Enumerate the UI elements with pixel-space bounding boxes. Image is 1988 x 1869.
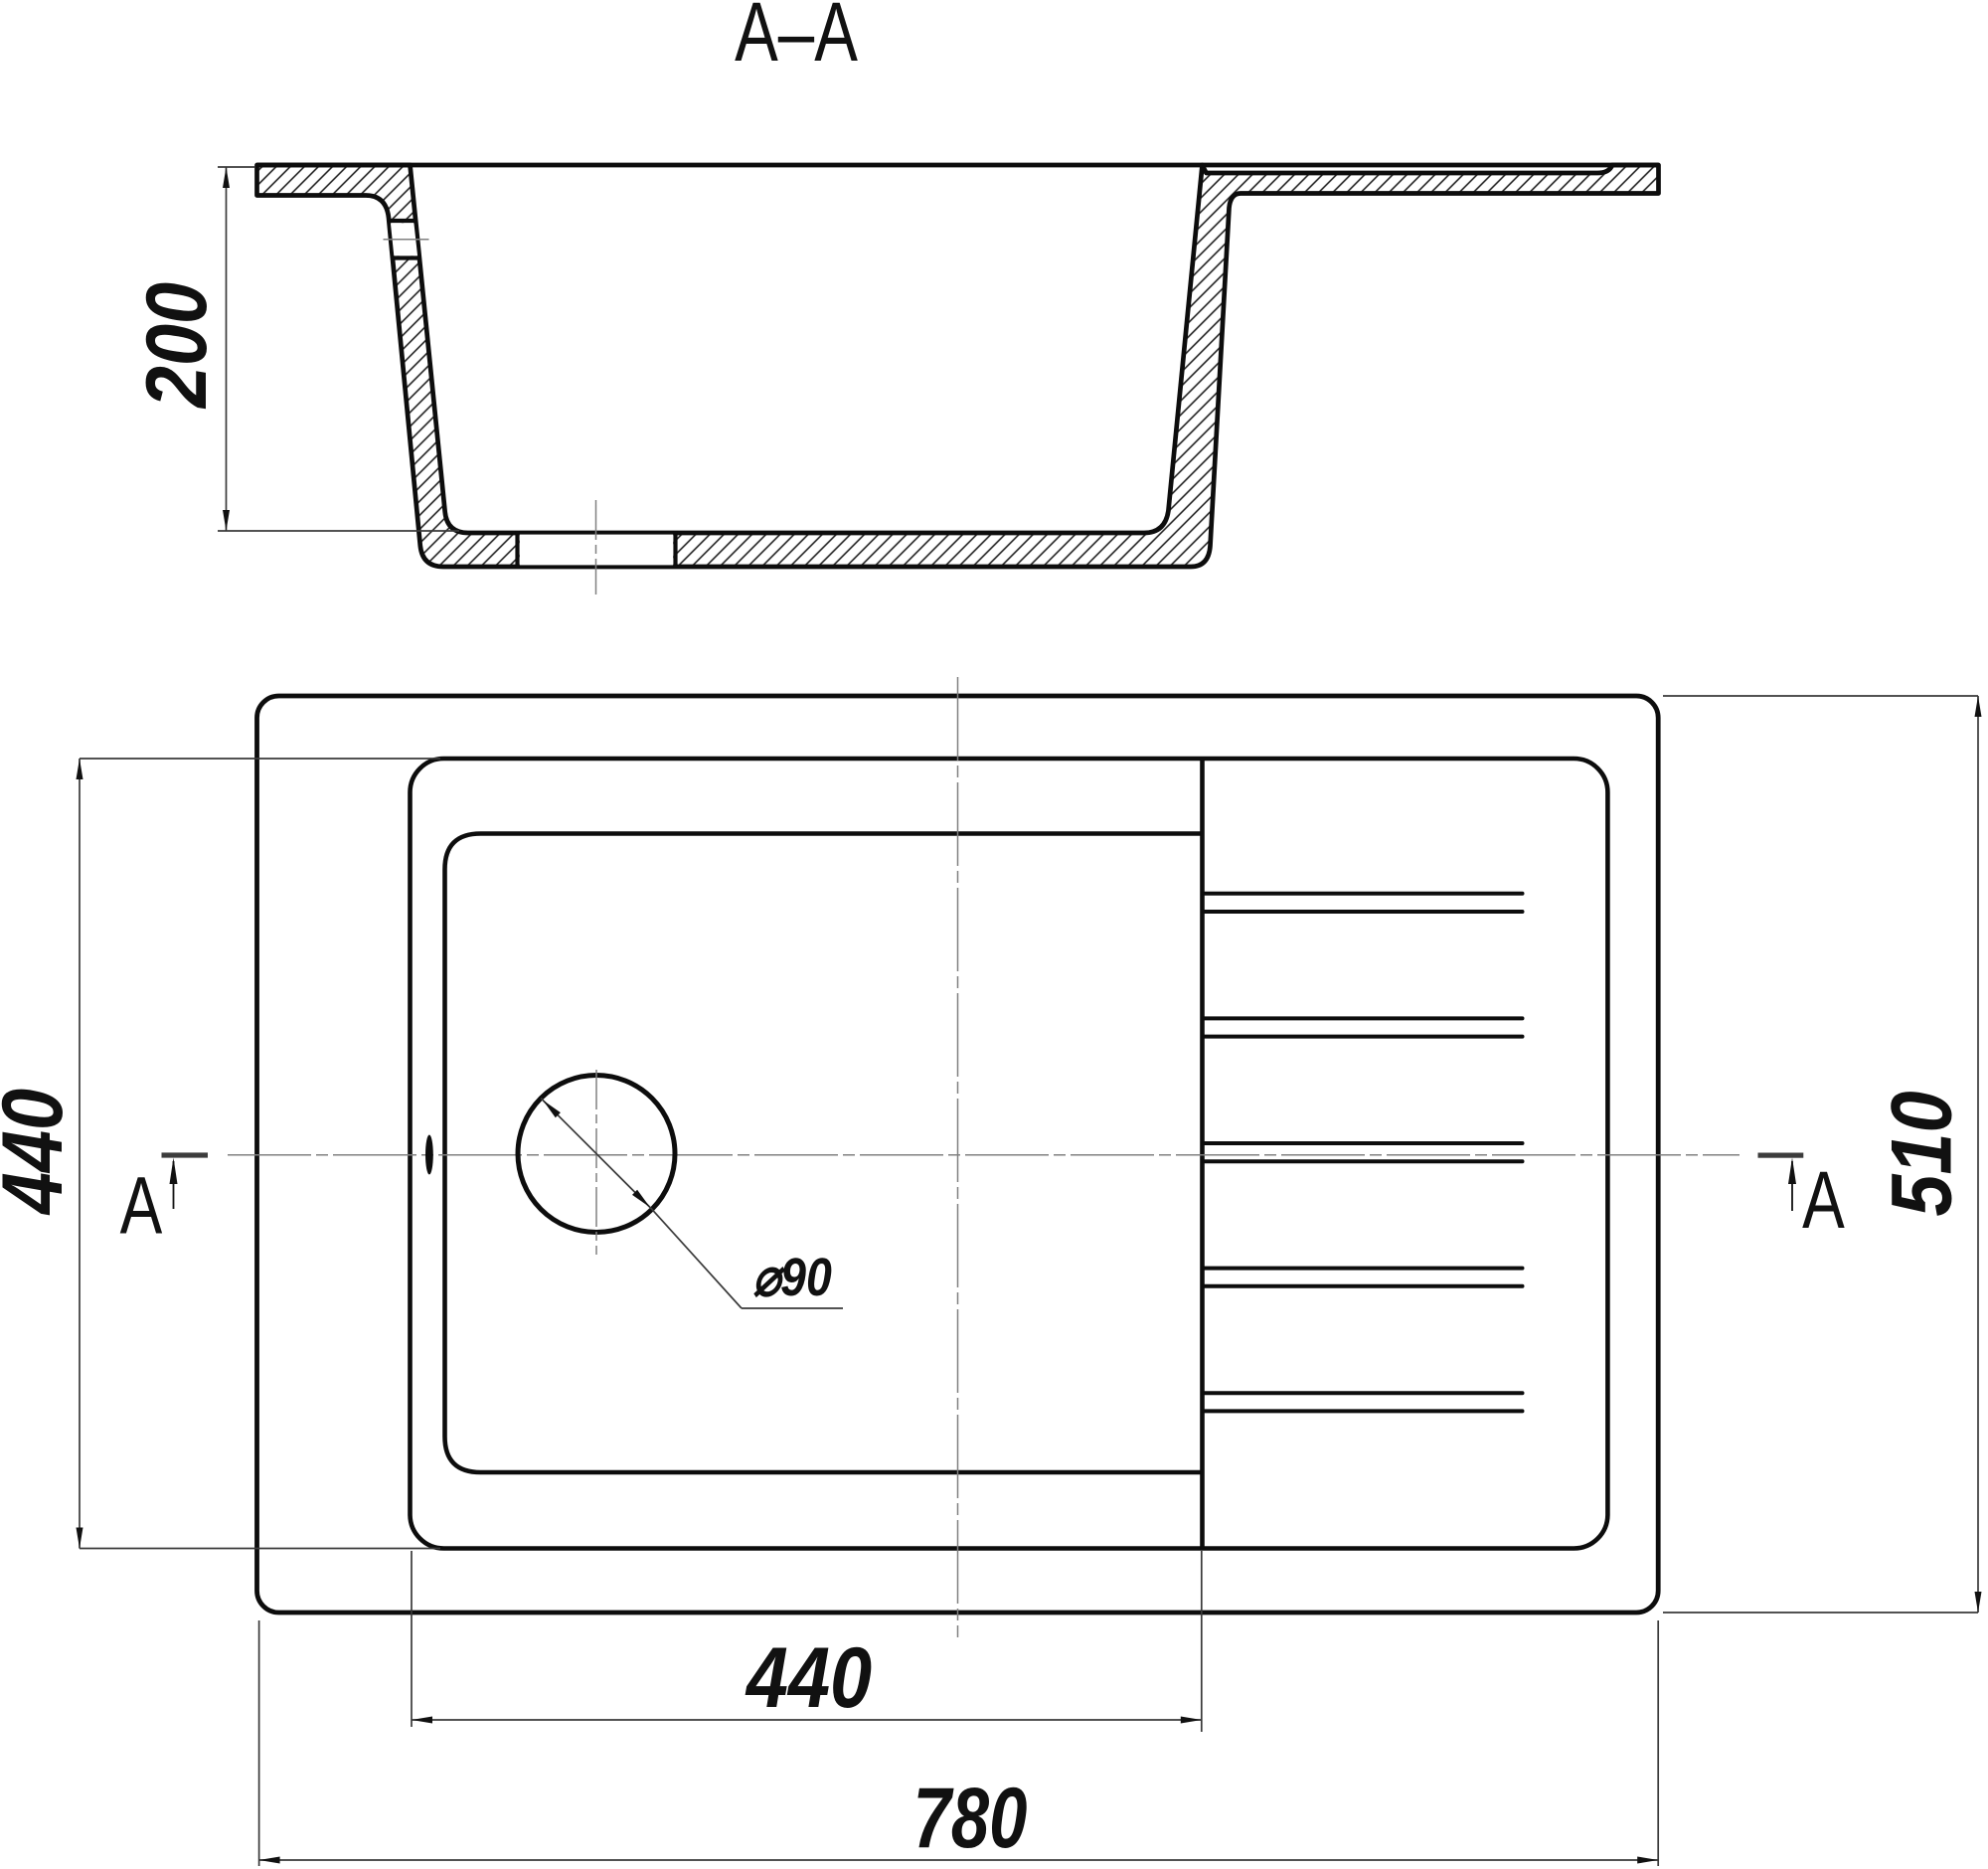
svg-text:510: 510 — [1875, 1091, 1970, 1216]
svg-text:440: 440 — [0, 1089, 81, 1216]
svg-text:200: 200 — [130, 282, 226, 410]
svg-text:A–A: A–A — [735, 0, 858, 79]
svg-text:A: A — [1802, 1153, 1845, 1246]
svg-text:780: 780 — [913, 1771, 1028, 1866]
svg-text:A: A — [120, 1159, 163, 1252]
svg-text:⌀90: ⌀90 — [752, 1247, 832, 1307]
svg-text:440: 440 — [745, 1631, 872, 1727]
